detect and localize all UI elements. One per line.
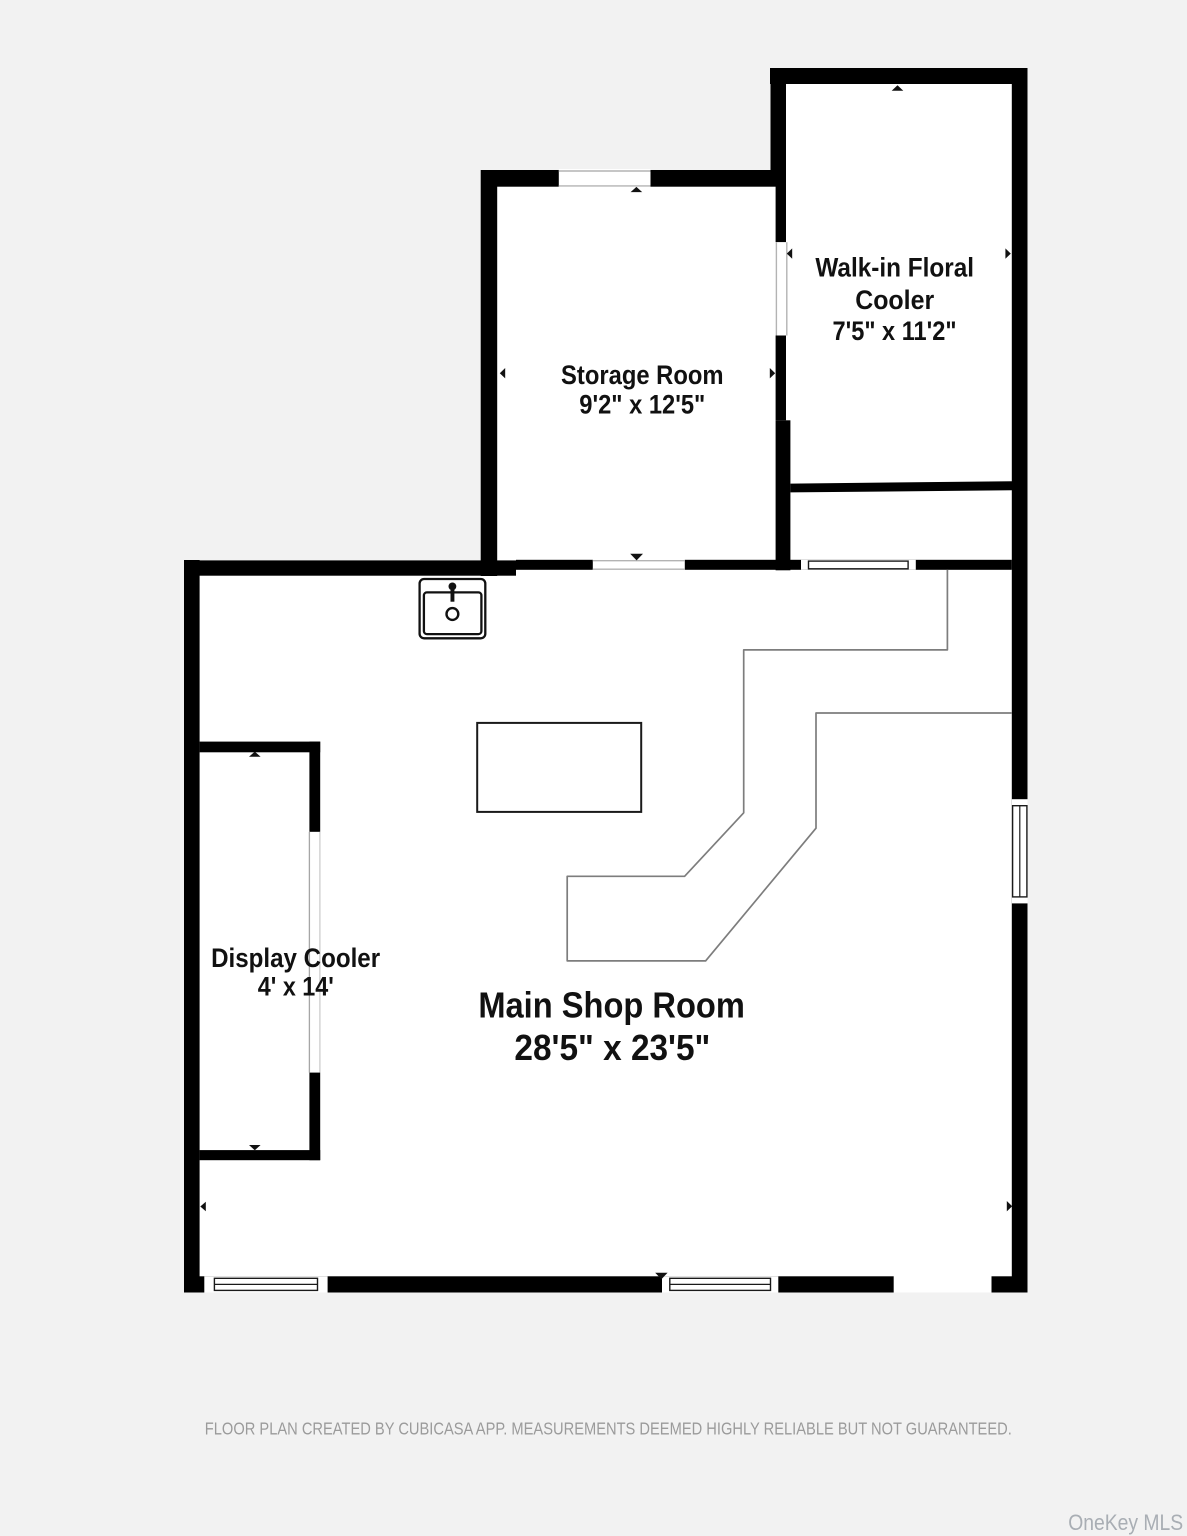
svg-text:4' x 14': 4' x 14' xyxy=(258,972,334,1002)
svg-text:Cooler: Cooler xyxy=(855,285,934,315)
svg-text:Main Shop Room: Main Shop Room xyxy=(478,985,745,1026)
svg-text:Storage Room: Storage Room xyxy=(561,360,724,390)
svg-text:FLOOR PLAN CREATED BY CUBICASA: FLOOR PLAN CREATED BY CUBICASA APP. MEAS… xyxy=(205,1419,1012,1439)
svg-text:28'5" x 23'5": 28'5" x 23'5" xyxy=(514,1027,710,1068)
svg-text:7'5" x 11'2": 7'5" x 11'2" xyxy=(833,316,957,346)
svg-text:OneKey MLS: OneKey MLS xyxy=(1068,1510,1183,1535)
svg-text:9'2" x 12'5": 9'2" x 12'5" xyxy=(579,389,705,419)
svg-text:Walk-in Floral: Walk-in Floral xyxy=(815,253,974,283)
svg-text:Display Cooler: Display Cooler xyxy=(211,943,380,973)
